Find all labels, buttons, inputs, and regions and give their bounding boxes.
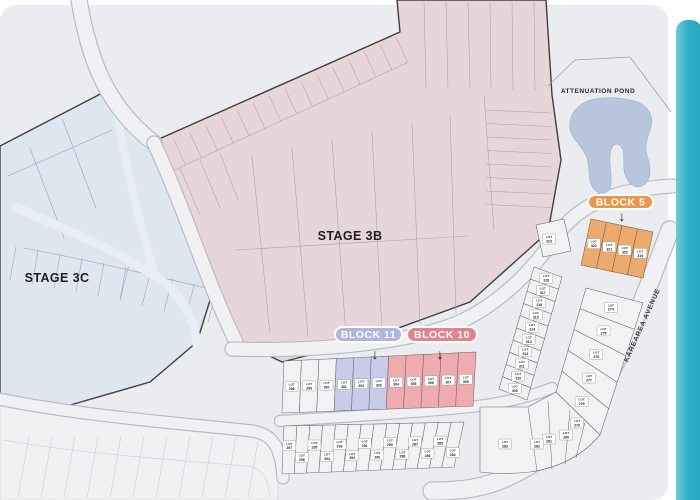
svg-text:311: 311 [519,364,525,368]
svg-text:322: 322 [591,244,597,248]
svg-text:LOT: LOT [543,274,549,278]
lot-label-298: LOT298 [285,382,298,392]
lot-label-321: LOT321 [603,242,616,252]
stage-3c-label: STAGE 3C [25,271,90,285]
svg-text:288: 288 [400,455,406,459]
svg-text:290: 290 [374,455,380,459]
lot-label-314: LOT314 [526,322,539,332]
lot-label-274: LOT274 [604,302,617,312]
block-10-arrow-icon: ↓ [437,346,444,362]
svg-text:302: 302 [358,384,364,388]
lot-label-306: LOT306 [424,376,437,386]
lot-label-275: LOT275 [597,326,610,336]
svg-text:287: 287 [412,442,418,446]
lot-label-322: LOT322 [587,239,600,249]
svg-text:305: 305 [411,382,417,386]
svg-text:303: 303 [376,383,382,387]
svg-text:309: 309 [512,389,518,393]
svg-text:282: 282 [534,444,540,448]
lot-label-307: LOT307 [442,375,455,385]
svg-text:316: 316 [536,303,542,307]
lot-label-317: LOT317 [536,285,549,295]
svg-text:291: 291 [362,444,368,448]
svg-text:LOT: LOT [393,378,399,382]
lot-label-279: LOT279 [571,418,584,428]
svg-text:LOT: LOT [450,449,456,453]
lot-label-291: LOT291 [358,438,371,448]
svg-text:299: 299 [306,386,312,390]
lot-label-303: LOT303 [372,378,385,388]
lot-label-310: LOT310 [512,371,525,381]
svg-text:281: 281 [546,439,552,443]
svg-text:314: 314 [529,328,535,332]
svg-text:LOT: LOT [637,249,643,253]
svg-text:LOT: LOT [399,450,405,454]
svg-text:297: 297 [286,446,292,450]
svg-text:295: 295 [312,445,318,449]
block-5-arrow-icon: ↓ [619,208,626,224]
svg-text:LOT: LOT [341,380,347,384]
svg-text:LOT: LOT [606,243,612,247]
stage-3b-label: STAGE 3B [318,229,383,243]
svg-text:277: 277 [586,379,592,383]
lot-label-312: LOT312 [519,347,532,357]
subdivision-plan: LOT298LOT299LOT300LOT301LOT302LOT303LOT3… [0,0,700,500]
svg-text:LOT: LOT [502,440,508,444]
lot-label-309: LOT309 [508,383,521,393]
svg-text:304: 304 [393,383,399,387]
svg-text:317: 317 [540,291,546,295]
svg-text:LOT: LOT [362,439,368,443]
svg-text:274: 274 [608,308,614,312]
lot-label-286: LOT286 [421,448,434,458]
svg-text:315: 315 [533,315,539,319]
svg-text:LOT: LOT [586,374,592,378]
lot-label-308: LOT308 [459,374,472,384]
svg-text:LOT: LOT [445,376,451,380]
svg-text:308: 308 [463,380,469,384]
svg-text:LOT: LOT [536,299,542,303]
svg-text:LOT: LOT [463,375,469,379]
svg-text:318: 318 [543,279,549,283]
svg-text:280: 280 [563,435,569,439]
svg-text:LOT: LOT [546,435,552,439]
lot-label-323: LOT323 [543,234,556,244]
lot-label-288: LOT288 [396,449,409,459]
svg-text:279: 279 [574,423,580,427]
svg-text:LOT: LOT [358,380,364,384]
svg-text:LOT: LOT [591,240,597,244]
lot-label-313: LOT313 [522,334,535,344]
lot-label-299: LOT299 [303,381,316,391]
svg-text:LOT: LOT [323,381,329,385]
svg-text:LOT: LOT [512,384,518,388]
svg-text:323: 323 [546,239,552,243]
svg-text:293: 293 [337,445,343,449]
svg-text:LOT: LOT [515,372,521,376]
lot-label-311: LOT311 [515,359,528,369]
lot-label-282: LOT282 [531,439,544,449]
svg-text:LOT: LOT [410,378,416,382]
svg-text:292: 292 [349,456,355,460]
lot-label-281: LOT281 [543,434,556,444]
lot-label-296: LOT296 [295,452,308,462]
svg-text:LOT: LOT [289,383,295,387]
lot-label-304: LOT304 [390,377,403,387]
lot-label-290: LOT290 [371,450,384,460]
svg-text:LOT: LOT [526,335,532,339]
svg-text:312: 312 [522,352,528,356]
svg-text:289: 289 [387,443,393,447]
svg-text:LOT: LOT [324,453,330,457]
svg-text:307: 307 [445,380,451,384]
lot-label-277: LOT277 [582,373,595,383]
lot-label-297: LOT297 [283,441,296,451]
svg-text:LOT: LOT [424,449,430,453]
lot-label-287: LOT287 [409,437,422,447]
svg-text:LOT: LOT [299,453,305,457]
attenuation-pond-label: ATTENUATION POND [561,88,635,95]
svg-text:298: 298 [289,387,295,391]
svg-text:LOT: LOT [622,246,628,250]
svg-text:275: 275 [601,331,607,335]
svg-text:284: 284 [450,453,456,457]
svg-text:LOT: LOT [306,382,312,386]
lot-label-293: LOT293 [333,439,346,449]
svg-text:306: 306 [428,381,434,385]
svg-text:LOT: LOT [286,442,292,446]
svg-text:LOT: LOT [412,438,418,442]
svg-text:LOT: LOT [519,360,525,364]
lot-label-300: LOT300 [320,380,333,390]
svg-text:LOT: LOT [522,348,528,352]
svg-text:LOT: LOT [546,235,552,239]
block-11-pill-label: BLOCK 11 [341,329,396,341]
accent-sidebar [676,20,700,500]
svg-text:300: 300 [324,386,330,390]
block-5-pill-label: BLOCK 5 [596,197,646,209]
lot-label-284: LOT284 [446,448,459,458]
svg-text:LOT: LOT [608,303,614,307]
lot-label-280: LOT280 [560,430,573,440]
svg-text:320: 320 [622,251,628,255]
lot-label-319: LOT319 [634,248,647,258]
svg-text:LOT: LOT [428,377,434,381]
lot-label-294: LOT294 [321,452,334,462]
svg-text:286: 286 [425,454,431,458]
svg-text:LOT: LOT [376,379,382,383]
svg-text:LOT: LOT [533,311,539,315]
lot-label-285: LOT285 [434,436,447,446]
svg-text:LOT: LOT [437,437,443,441]
svg-text:LOT: LOT [593,351,599,355]
svg-text:310: 310 [515,377,521,381]
svg-text:313: 313 [526,340,532,344]
svg-text:LOT: LOT [540,286,546,290]
lot-label-318: LOT318 [540,273,553,283]
svg-text:LOT: LOT [374,451,380,455]
svg-text:LOT: LOT [336,440,342,444]
lot-label-283: LOT283 [499,439,512,449]
block-10-pill-label: BLOCK 10 [414,329,470,341]
lot-label-295: LOT295 [308,440,321,450]
svg-text:LOT: LOT [387,439,393,443]
svg-text:319: 319 [637,254,643,258]
lot-label-305: LOT305 [407,377,420,387]
lot-label-301: LOT301 [337,379,350,389]
lot-label-292: LOT292 [346,451,359,461]
lot-label-289: LOT289 [383,438,396,448]
lot-label-278: LOT278 [575,397,588,407]
lot-label-316: LOT316 [533,298,546,308]
block-11-arrow-icon: ↓ [372,346,379,362]
lot-label-315: LOT315 [529,310,542,320]
svg-text:296: 296 [299,458,305,462]
svg-text:LOT: LOT [563,431,569,435]
svg-text:LOT: LOT [534,440,540,444]
svg-text:276: 276 [593,355,599,359]
svg-text:LOT: LOT [574,419,580,423]
svg-text:LOT: LOT [600,327,606,331]
lot-label-302: LOT302 [355,379,368,389]
lot-label-276: LOT276 [590,350,603,360]
svg-text:294: 294 [324,457,330,461]
svg-text:LOT: LOT [311,441,317,445]
svg-text:LOT: LOT [529,323,535,327]
svg-text:278: 278 [579,402,585,406]
svg-text:283: 283 [502,444,508,448]
svg-text:321: 321 [606,247,612,251]
svg-text:285: 285 [437,441,443,445]
svg-text:LOT: LOT [349,452,355,456]
lot-label-320: LOT320 [618,245,631,255]
svg-text:301: 301 [341,385,347,389]
svg-text:LOT: LOT [579,398,585,402]
